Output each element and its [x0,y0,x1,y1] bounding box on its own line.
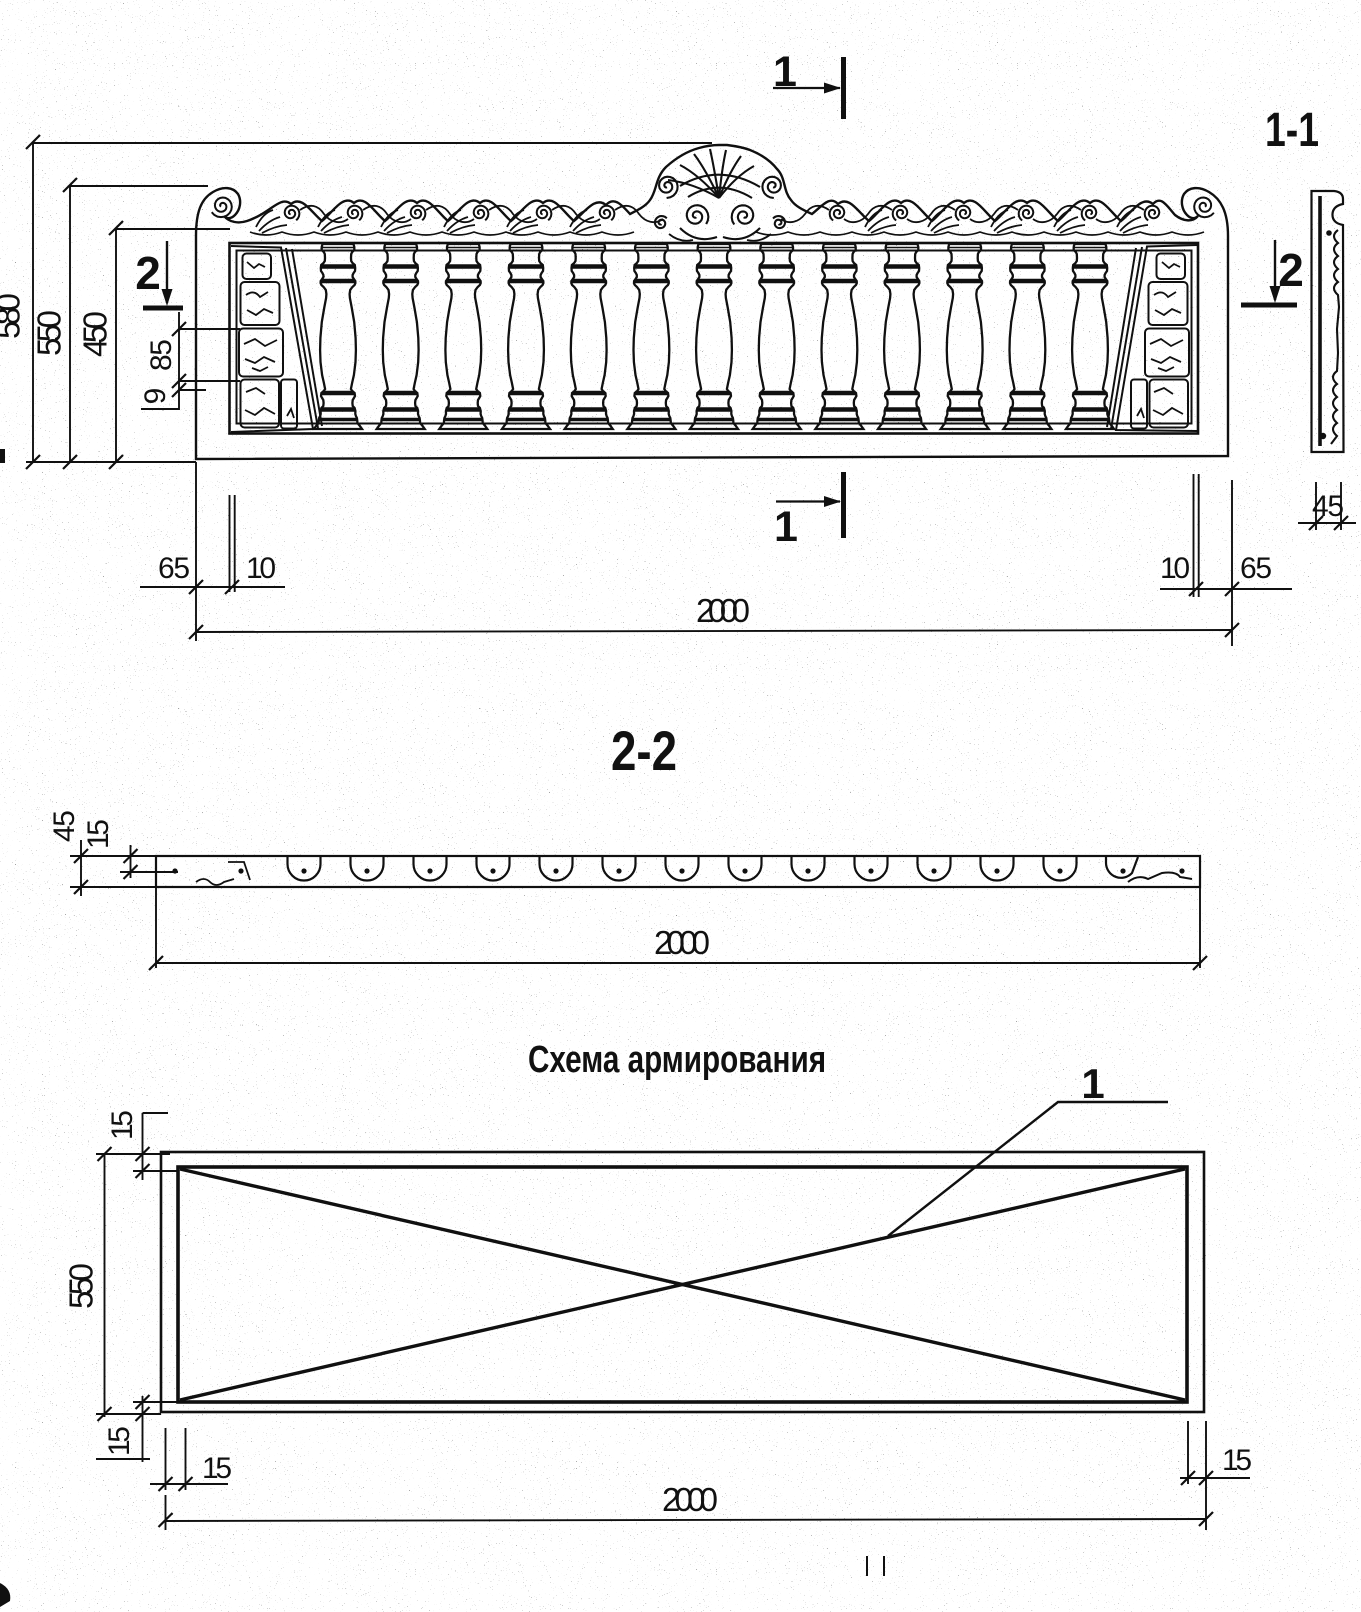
svg-text:15: 15 [103,1426,136,1456]
svg-text:10: 10 [1160,552,1190,585]
svg-text:580: 580 [0,293,27,339]
svg-text:45: 45 [48,810,81,842]
svg-text:1: 1 [773,48,797,96]
svg-text:Схема армирования: Схема армирования [528,1039,826,1081]
svg-text:65: 65 [1240,552,1272,585]
svg-text:2: 2 [135,247,161,299]
svg-text:10: 10 [246,552,276,585]
svg-text:45: 45 [1312,490,1344,523]
svg-text:2-2: 2-2 [611,719,677,782]
svg-text:15: 15 [1222,1444,1252,1477]
svg-text:15: 15 [106,1110,139,1140]
svg-text:550: 550 [31,310,68,356]
svg-text:2000: 2000 [696,592,750,629]
svg-text:15: 15 [202,1452,232,1485]
svg-text:1-1: 1-1 [1265,104,1319,157]
svg-text:450: 450 [77,311,114,357]
svg-text:1: 1 [774,503,798,551]
svg-text:550: 550 [63,1263,100,1309]
svg-text:15: 15 [82,819,115,849]
svg-text:2: 2 [1278,244,1304,296]
svg-text:65: 65 [158,552,190,585]
svg-text:2000: 2000 [662,1481,718,1518]
svg-text:1: 1 [1081,1060,1104,1107]
svg-text:9: 9 [139,388,172,405]
svg-text:85: 85 [145,339,178,371]
svg-text:2000: 2000 [654,924,710,961]
